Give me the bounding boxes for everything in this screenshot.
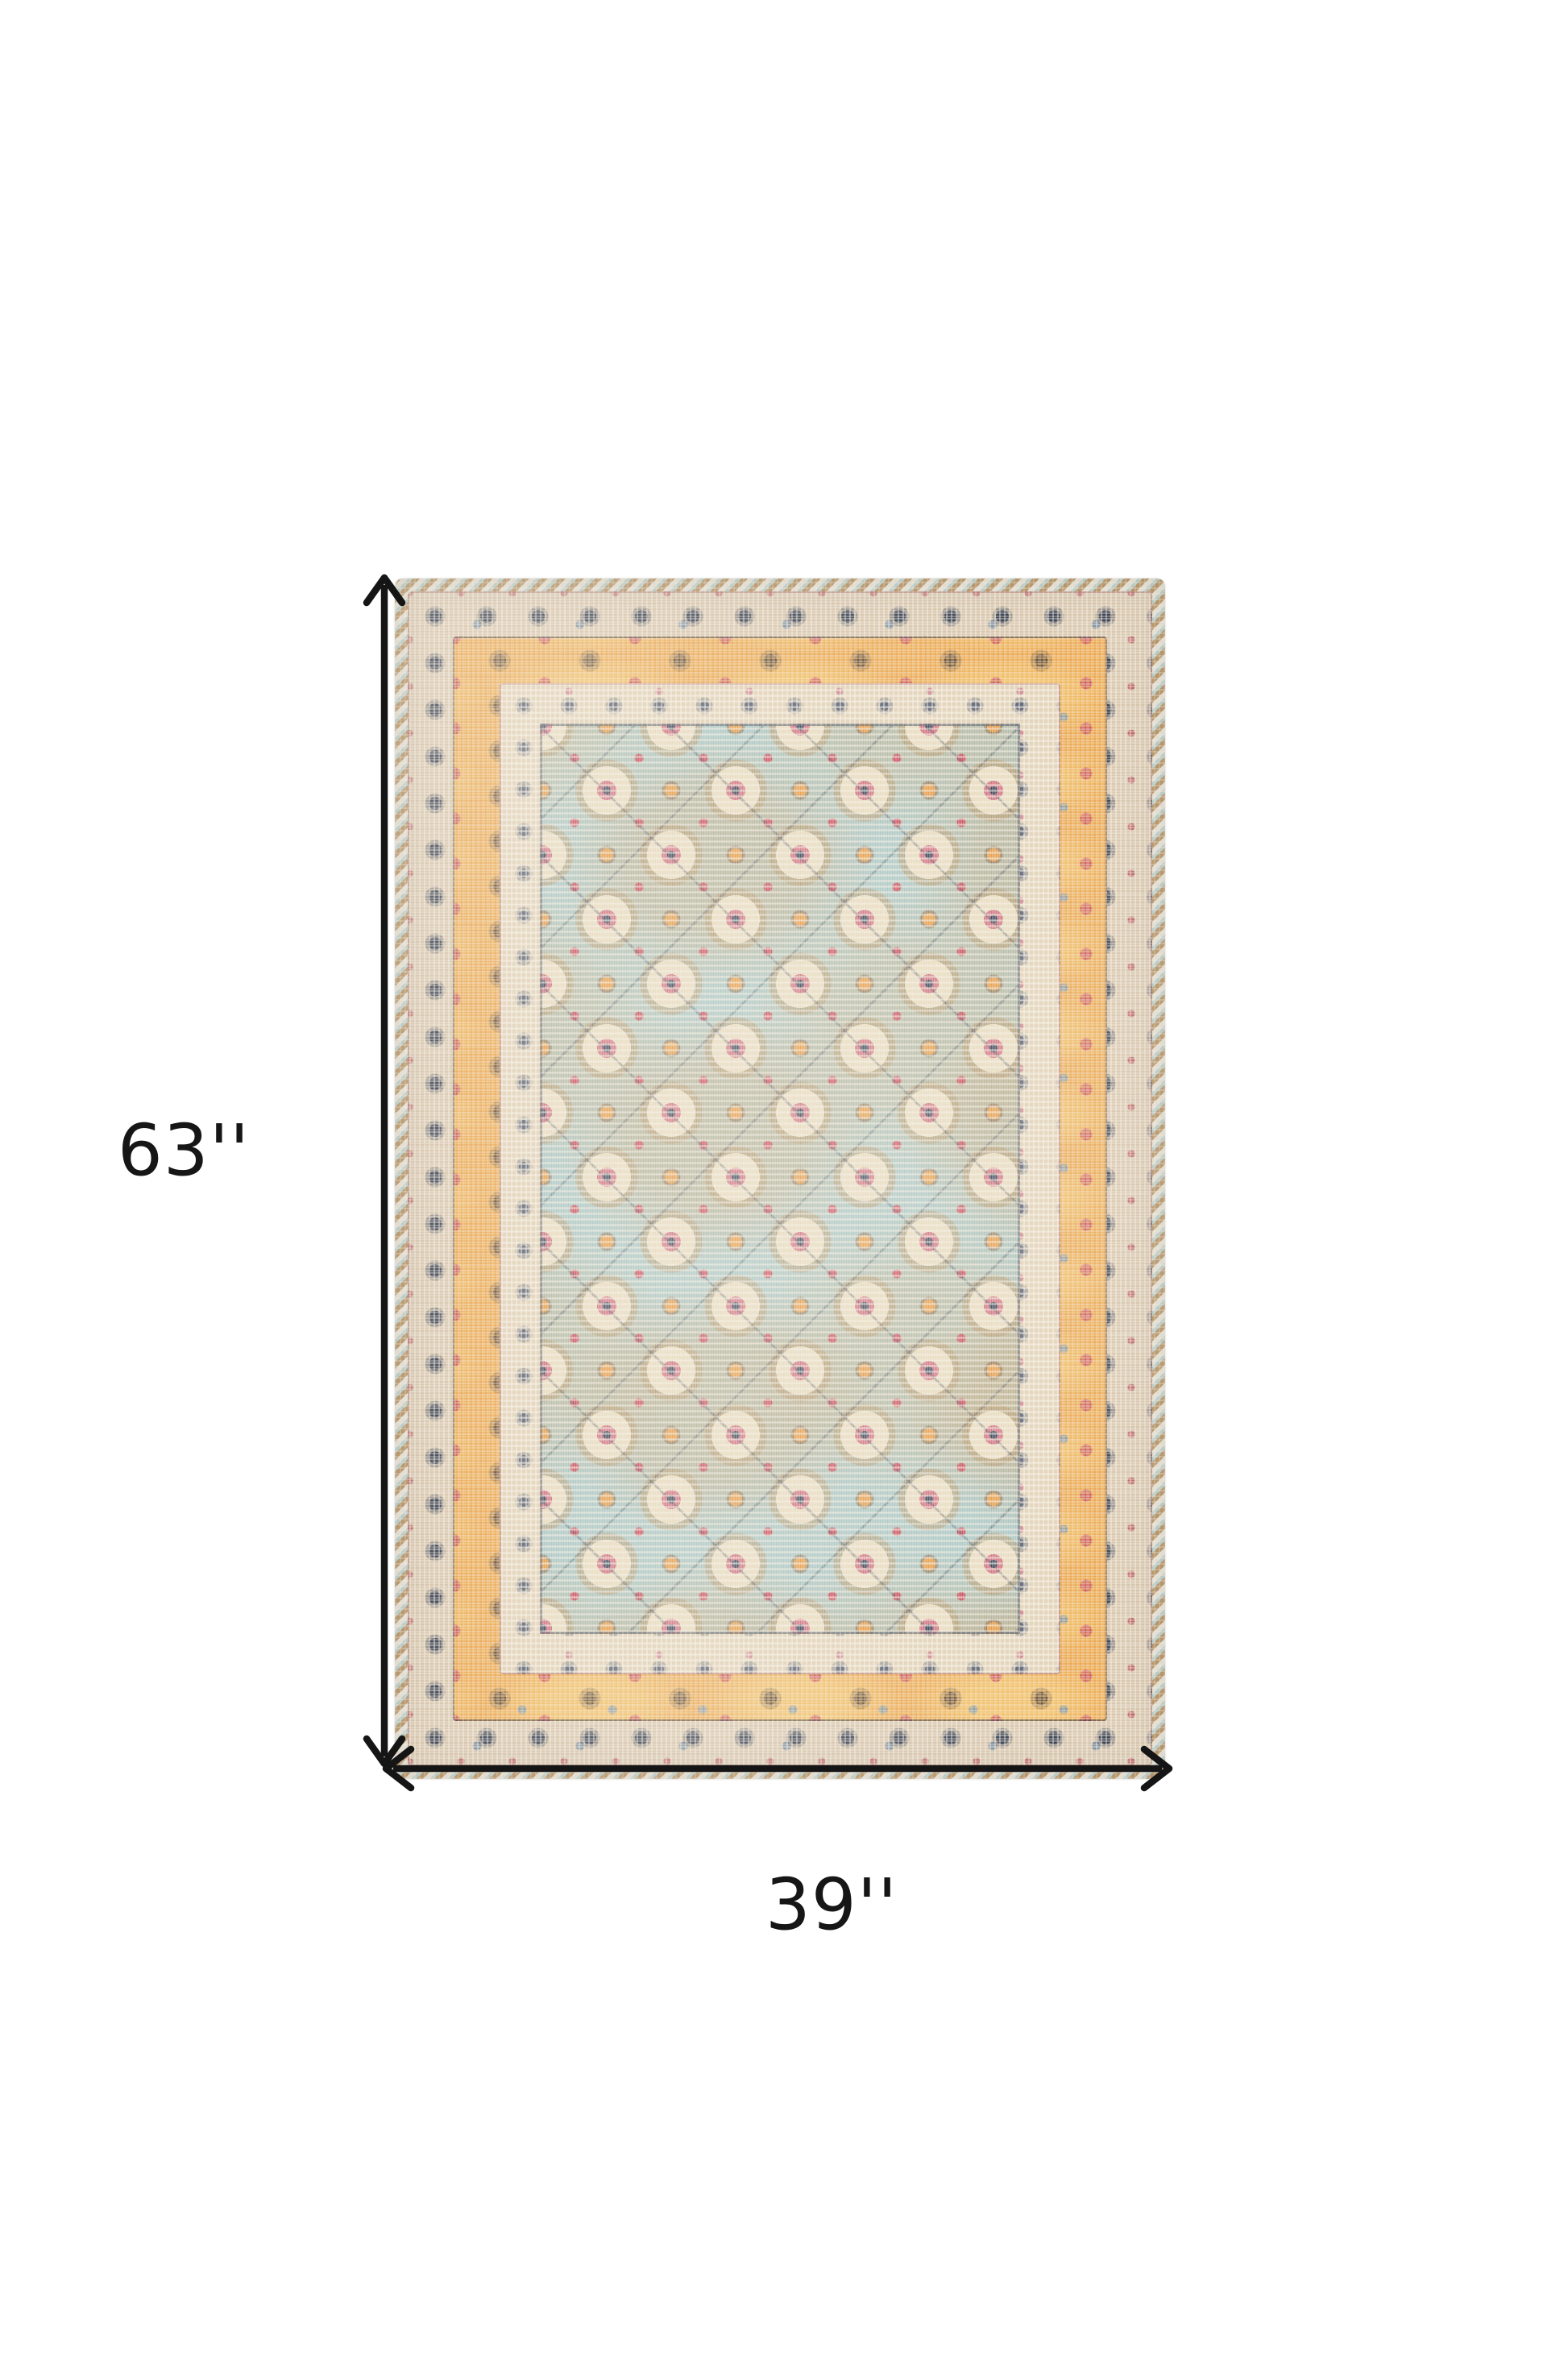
width-arrow [386,1749,1169,1788]
height-dimension-label: 63'' [118,1109,250,1192]
product-dimension-image: 63'' 39'' [0,0,1568,2364]
dimension-arrow-strokes [367,578,1169,1788]
width-dimension-label: 39'' [765,1864,898,1947]
height-arrow [367,578,402,1764]
